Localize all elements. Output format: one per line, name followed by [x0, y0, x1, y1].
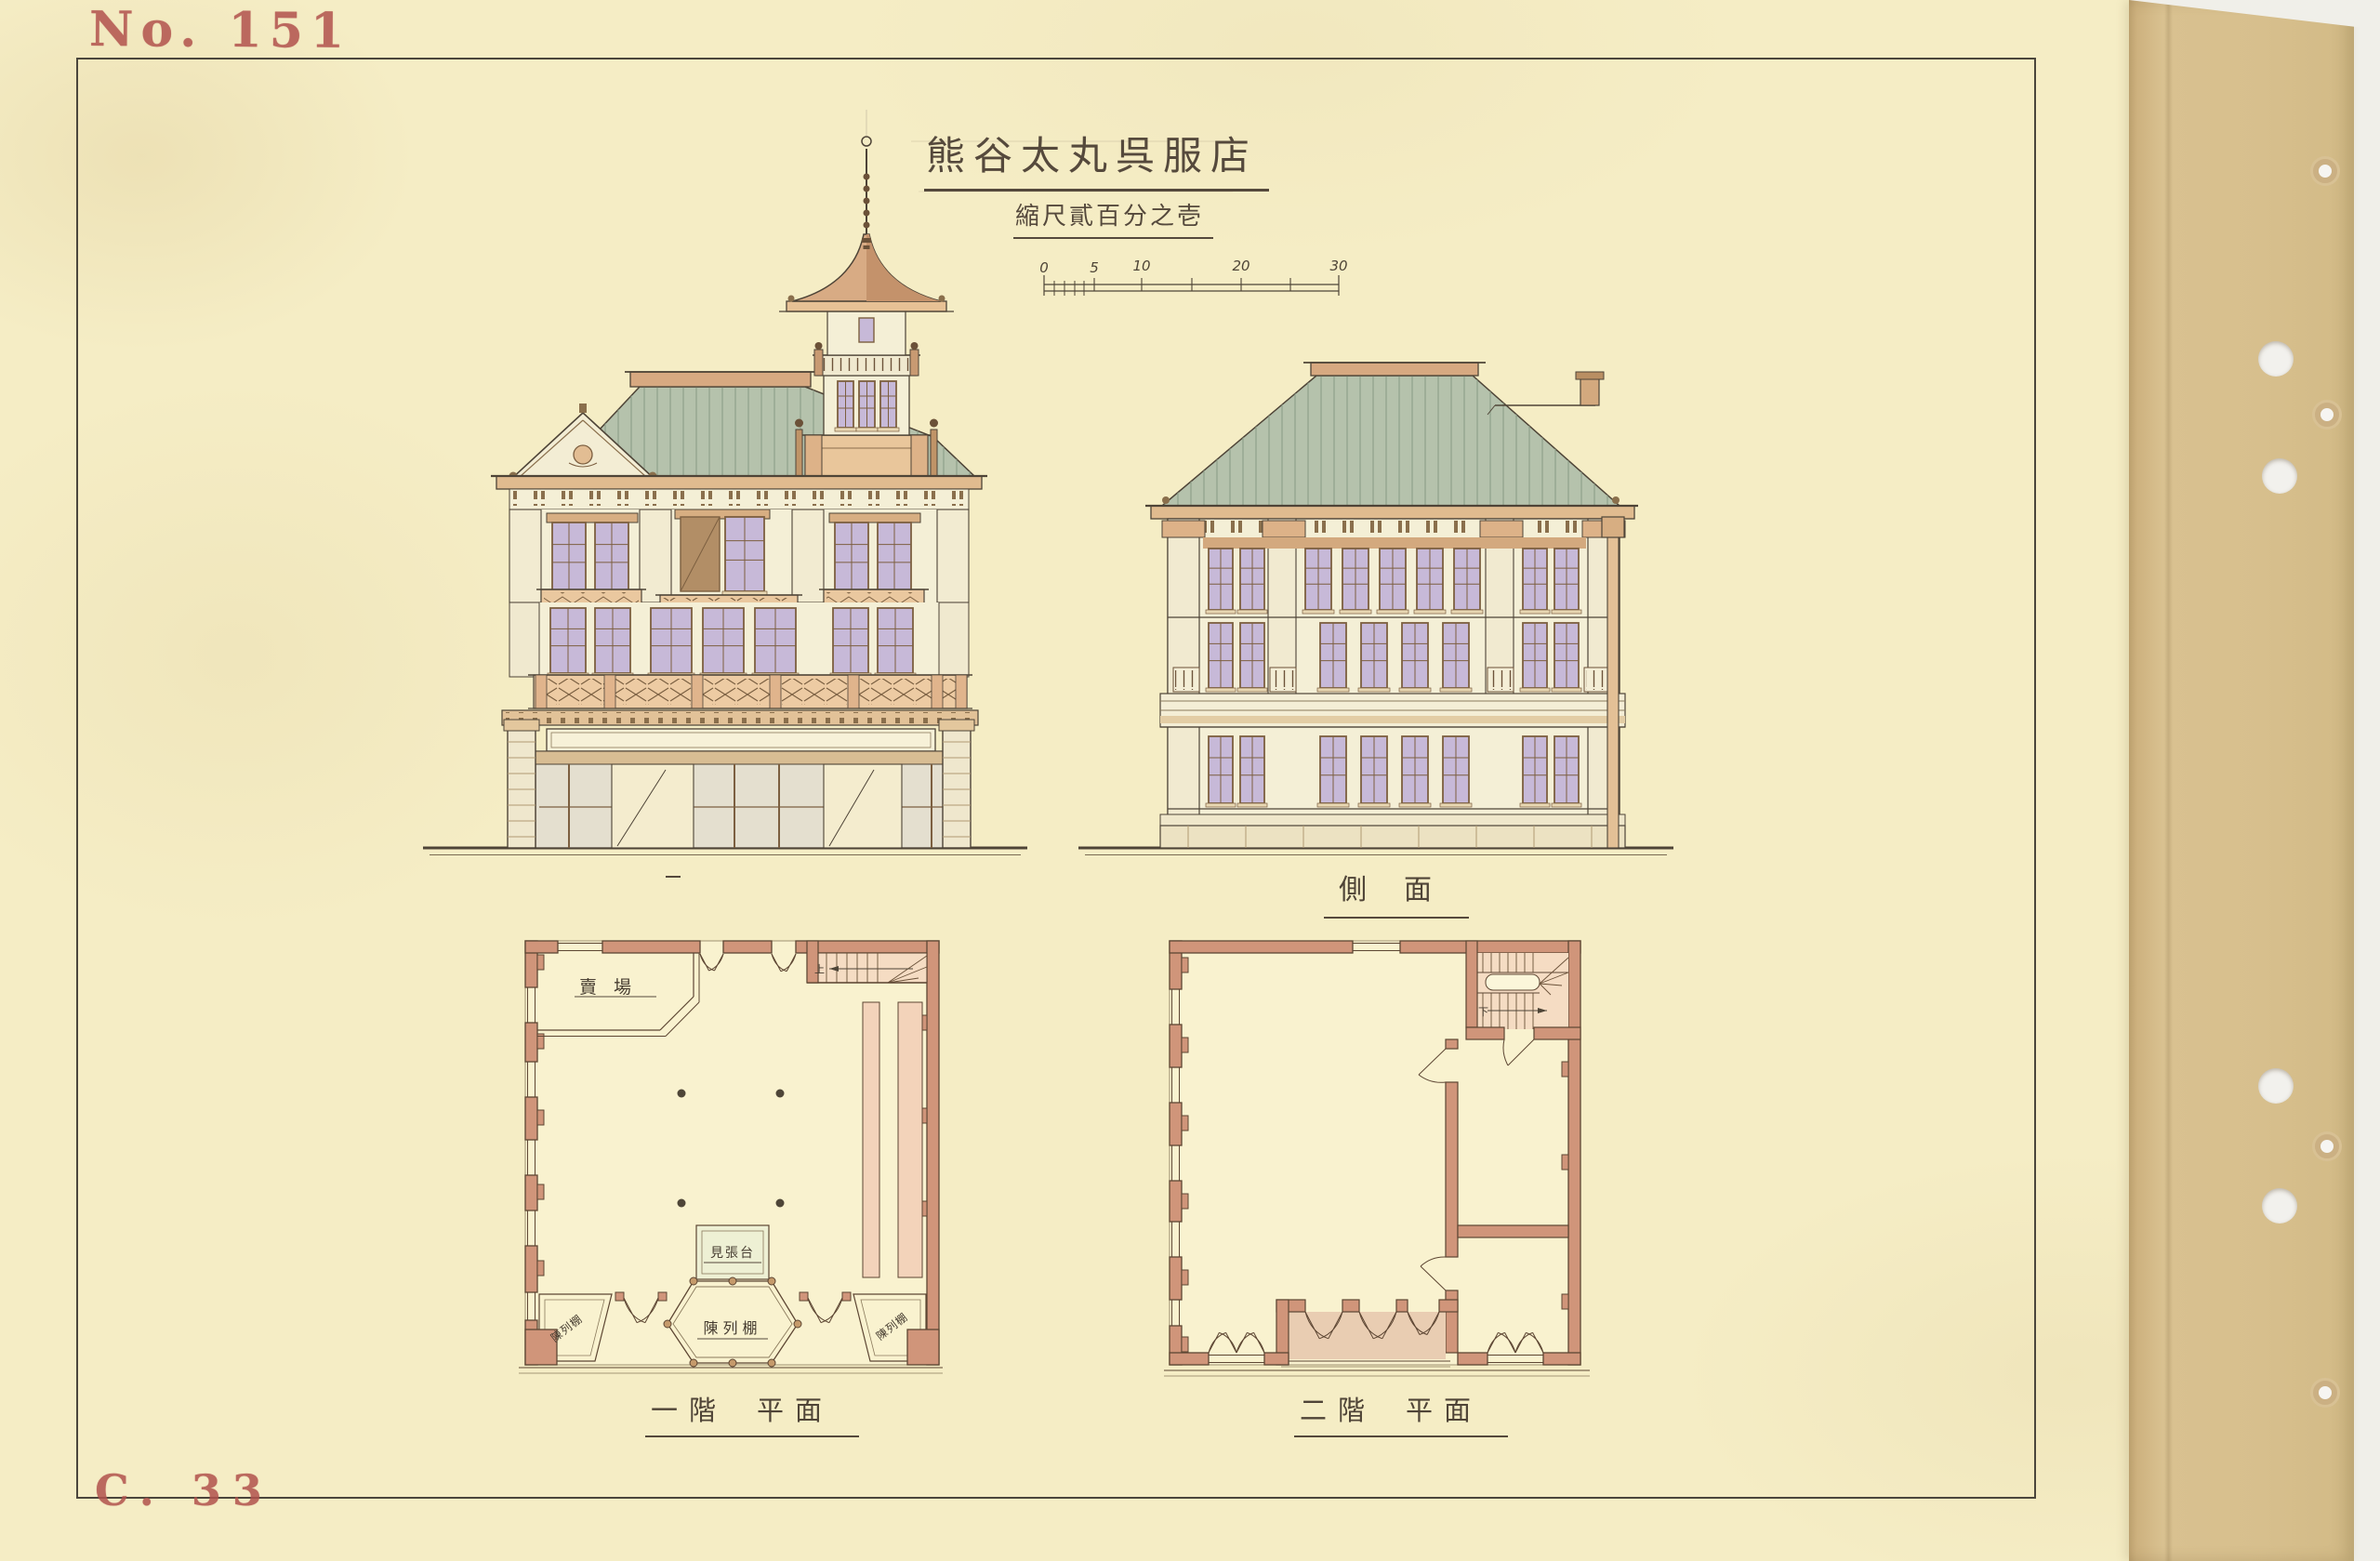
catalog-number-stamp: C. 33	[95, 1465, 273, 1515]
scale-tick-5: 5	[1090, 259, 1099, 276]
stair-up-label: 上	[814, 963, 825, 975]
scale-tick-10: 10	[1132, 258, 1150, 274]
second-floor-plan-drawing	[1164, 941, 1590, 1376]
second-floor-plan-label: 二階平面	[1294, 1389, 1508, 1437]
plan1-floor-text: 一階	[651, 1395, 727, 1426]
punch-hole	[2313, 1381, 2337, 1405]
front-elevation-label	[666, 866, 681, 878]
plan2-floor-text: 二階	[1300, 1395, 1376, 1426]
stair-down-label: 下	[1478, 1006, 1488, 1018]
lookout-stand-label: 見張台	[710, 1246, 755, 1261]
scale-tick-20: 20	[1232, 258, 1249, 274]
sheet-number-stamp: No. 151	[89, 1, 351, 60]
scanned-drawing-page: 0 5 10 20 30 賣場 見張台 陳列棚 陳列棚 陳列棚 上 下 No. …	[0, 0, 2380, 1561]
display-case-label: 陳列棚	[703, 1319, 761, 1337]
punch-hole	[2315, 403, 2339, 427]
drawing-title: 熊谷太丸呉服店	[924, 125, 1269, 192]
plan1-word-text: 平面	[757, 1395, 833, 1426]
scale-bar	[1044, 275, 1339, 296]
side-elevation-drawing	[1078, 363, 1673, 855]
punch-hole	[2315, 1134, 2339, 1158]
punch-hole	[2258, 1068, 2294, 1104]
punch-hole	[2313, 159, 2337, 183]
scale-tick-0: 0	[1039, 259, 1049, 276]
punch-hole	[2262, 1188, 2297, 1224]
side-elevation-label: 側面	[1324, 866, 1469, 919]
punch-hole	[2262, 458, 2297, 494]
punch-hole	[2258, 341, 2294, 377]
binding-crease	[2164, 0, 2173, 1561]
binding-strip	[2129, 0, 2354, 1561]
scale-note: 縮尺貳百分之壱	[1013, 197, 1213, 239]
sales-floor-label: 賣場	[579, 977, 648, 998]
scale-tick-30: 30	[1329, 258, 1347, 274]
plan2-word-text: 平面	[1406, 1395, 1482, 1426]
first-floor-plan-drawing	[519, 941, 943, 1373]
front-elevation-drawing	[423, 137, 1027, 855]
first-floor-plan-label: 一階平面	[645, 1389, 859, 1437]
